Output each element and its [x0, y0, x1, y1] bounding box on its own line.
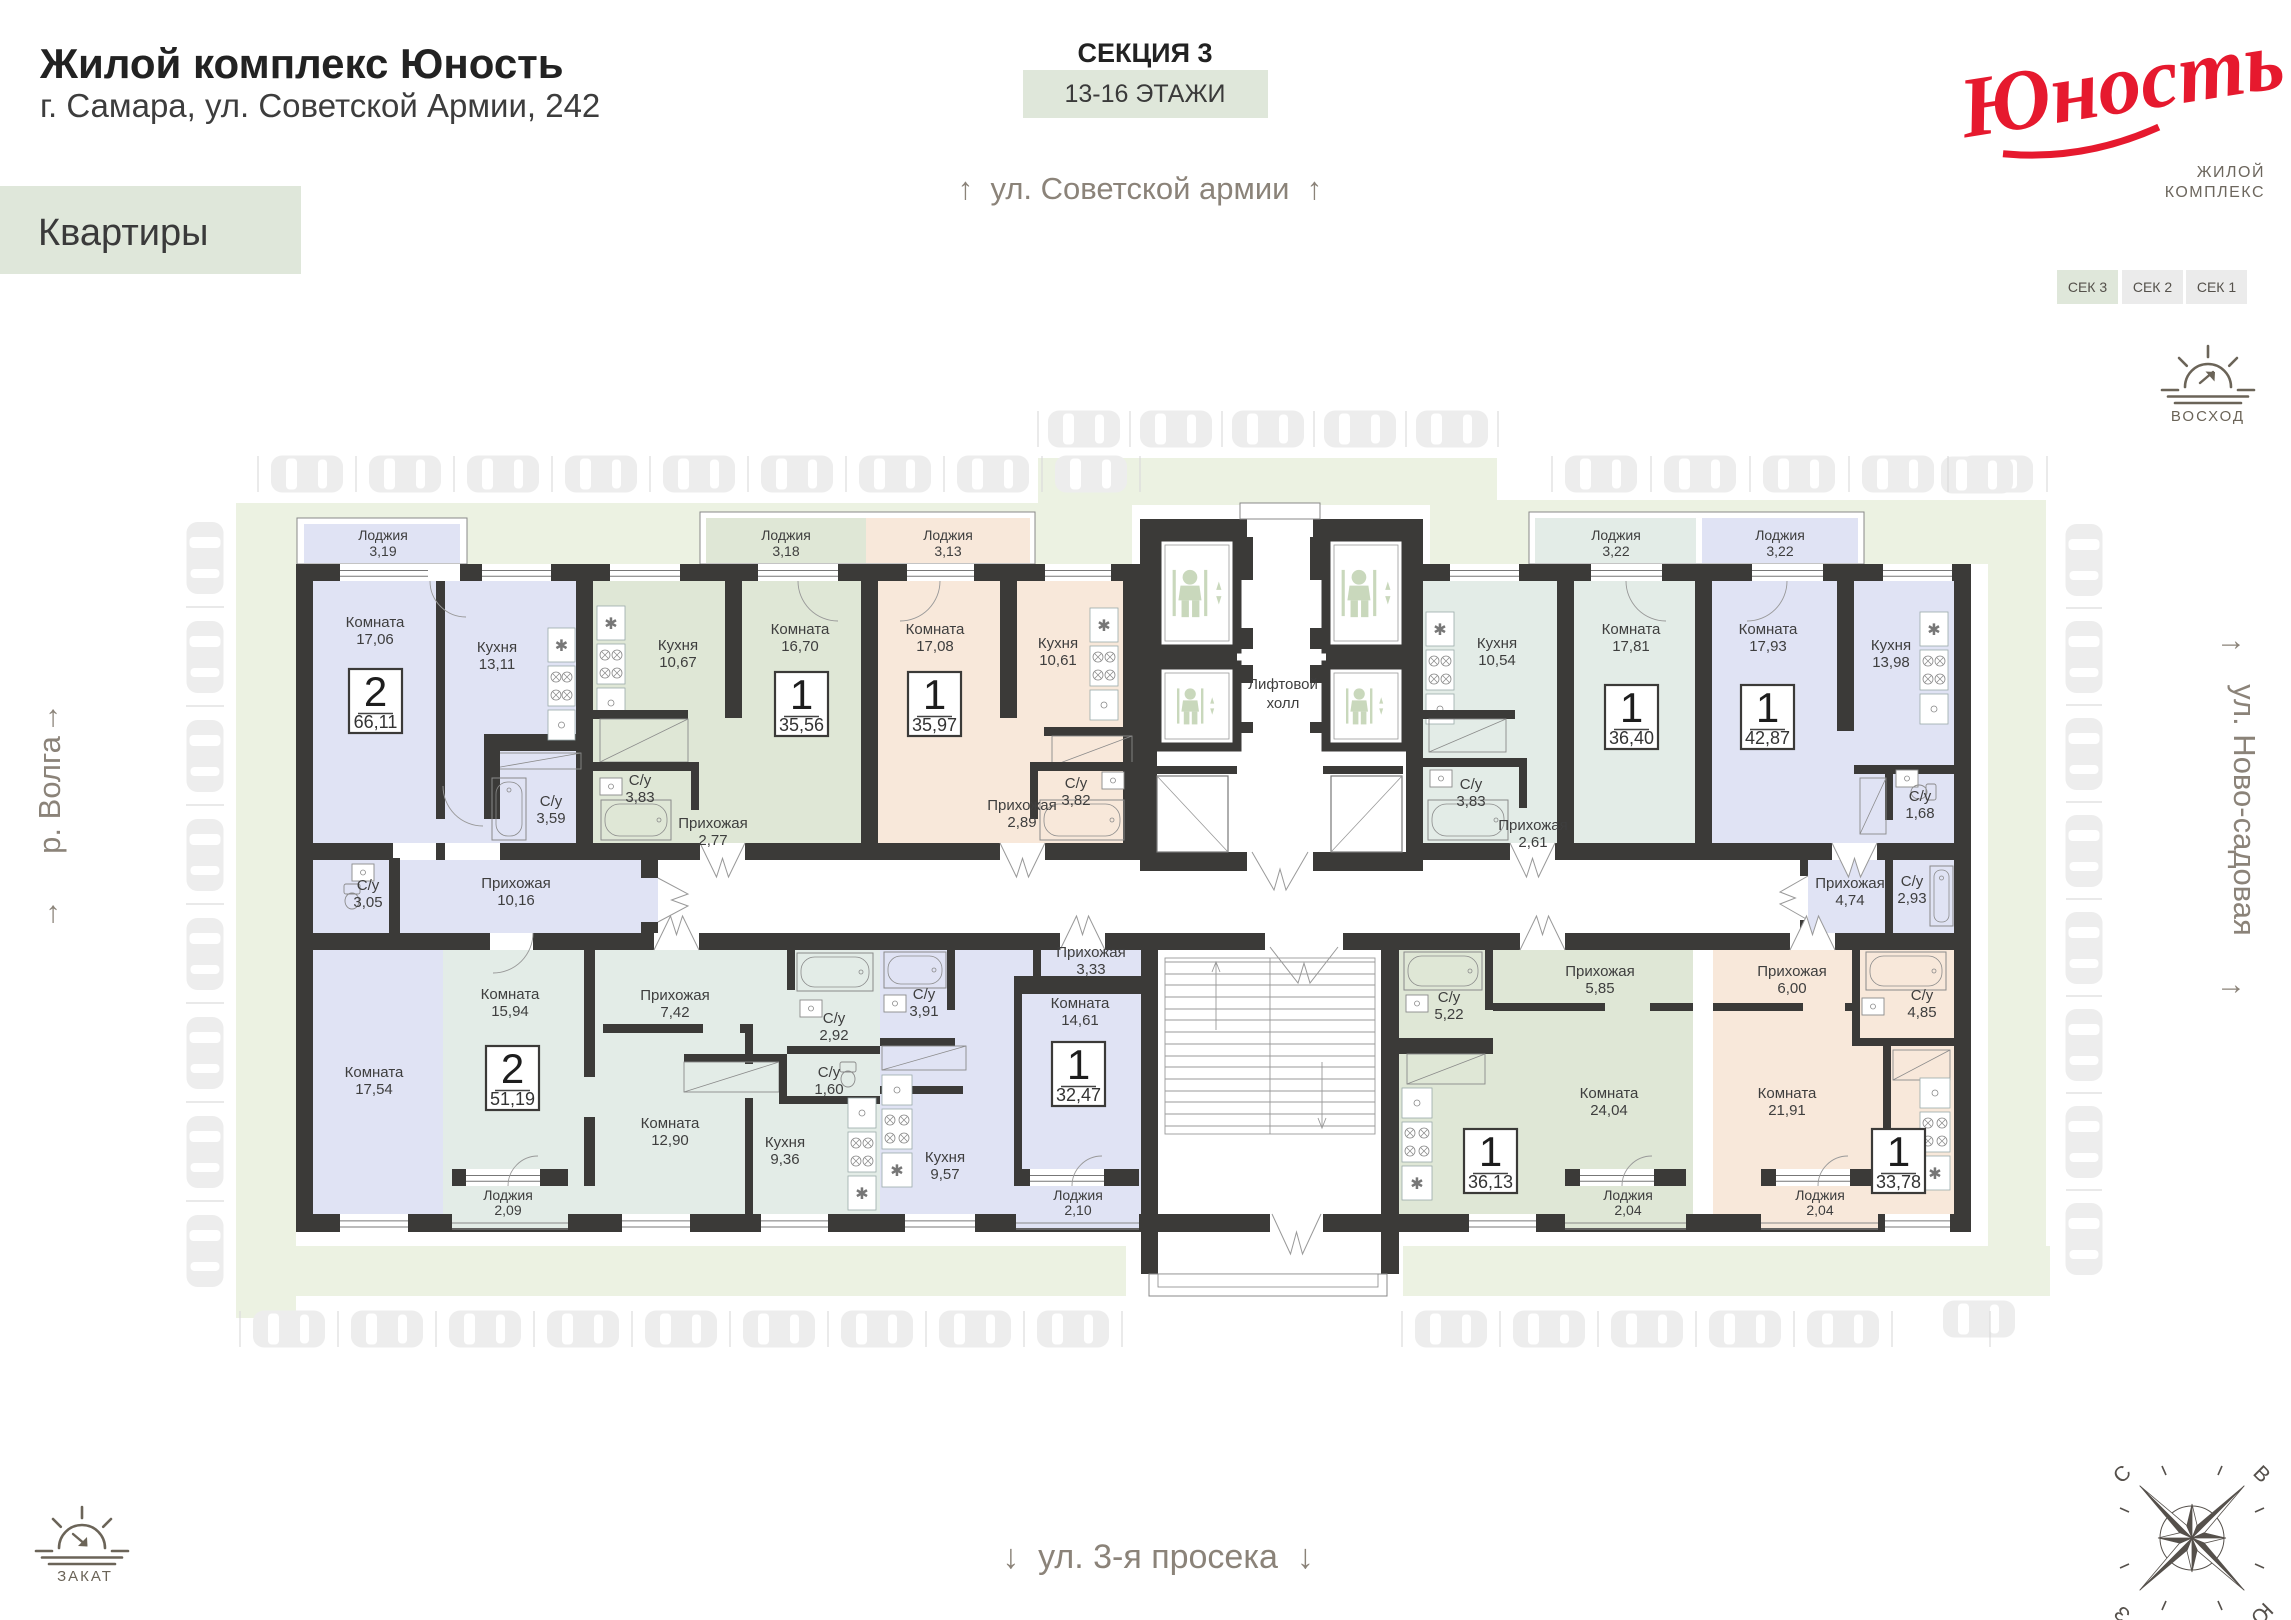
svg-text:Прихожая: Прихожая [987, 797, 1057, 814]
svg-text:16,70: 16,70 [781, 638, 819, 655]
svg-text:✱: ✱ [604, 616, 617, 633]
svg-text:Кухня: Кухня [1477, 635, 1517, 652]
svg-text:6,00: 6,00 [1777, 980, 1806, 997]
svg-text:1: 1 [1479, 1128, 1502, 1175]
svg-text:3,13: 3,13 [934, 543, 961, 559]
svg-text:С/у: С/у [1901, 873, 1924, 890]
svg-text:3,22: 3,22 [1602, 543, 1629, 559]
svg-text:3,05: 3,05 [353, 894, 382, 911]
svg-text:✱: ✱ [1410, 1176, 1423, 1193]
svg-text:12,90: 12,90 [651, 1132, 689, 1149]
svg-text:36,13: 36,13 [1468, 1172, 1513, 1192]
svg-text:С/у: С/у [818, 1064, 841, 1081]
svg-text:42,87: 42,87 [1745, 728, 1790, 748]
svg-text:СЕК 1: СЕК 1 [2197, 279, 2236, 295]
svg-text:17,08: 17,08 [916, 638, 954, 655]
svg-text:✱: ✱ [855, 1186, 868, 1203]
svg-text:10,54: 10,54 [1478, 652, 1516, 669]
svg-text:→: → [2216, 968, 2246, 1001]
svg-text:14,61: 14,61 [1061, 1012, 1099, 1029]
svg-text:СЕК 3: СЕК 3 [2068, 279, 2107, 295]
svg-text:Кухня: Кухня [925, 1149, 965, 1166]
svg-text:2,04: 2,04 [1614, 1202, 1641, 1218]
svg-text:13,11: 13,11 [479, 656, 515, 673]
svg-text:1: 1 [1067, 1041, 1090, 1088]
svg-text:17,54: 17,54 [355, 1081, 393, 1098]
svg-text:Прихожая: Прихожая [640, 987, 710, 1004]
svg-text:Прихожая: Прихожая [1815, 875, 1885, 892]
svg-text:35,97: 35,97 [912, 715, 957, 735]
svg-text:3,59: 3,59 [536, 810, 565, 827]
svg-text:13-16 ЭТАЖИ: 13-16 ЭТАЖИ [1064, 80, 1225, 108]
svg-text:Комната: Комната [771, 621, 830, 638]
svg-text:1: 1 [1756, 684, 1779, 731]
svg-text:р. Волга: р. Волга [32, 735, 67, 853]
svg-text:3,22: 3,22 [1766, 543, 1793, 559]
svg-text:✱: ✱ [555, 638, 568, 655]
svg-text:✱: ✱ [890, 1163, 903, 1180]
svg-text:✱: ✱ [1433, 622, 1446, 639]
svg-text:Комната: Комната [906, 621, 965, 638]
svg-text:10,67: 10,67 [659, 654, 697, 671]
svg-text:СЕК 2: СЕК 2 [2133, 279, 2172, 295]
svg-text:Комната: Комната [346, 614, 405, 631]
svg-text:Прихожая: Прихожая [678, 815, 748, 832]
svg-text:66,11: 66,11 [354, 712, 398, 732]
svg-text:КОМПЛЕКС: КОМПЛЕКС [2165, 184, 2265, 201]
svg-text:↑: ↑ [46, 896, 61, 929]
svg-text:✱: ✱ [1927, 622, 1940, 639]
svg-text:Лоджия: Лоджия [1755, 527, 1805, 543]
svg-text:С/у: С/у [1911, 987, 1934, 1004]
svg-text:Комната: Комната [1758, 1085, 1817, 1102]
svg-text:Прихожая: Прихожая [1565, 963, 1635, 980]
svg-text:Кухня: Кухня [1038, 635, 1078, 652]
svg-text:Кухня: Кухня [1871, 637, 1911, 654]
svg-text:2,92: 2,92 [819, 1027, 848, 1044]
svg-text:С/у: С/у [1065, 775, 1088, 792]
svg-text:Лоджия: Лоджия [1603, 1187, 1653, 1203]
svg-text:Комната: Комната [1580, 1085, 1639, 1102]
svg-text:Комната: Комната [481, 986, 540, 1003]
svg-text:ВОСХОД: ВОСХОД [2171, 408, 2245, 425]
svg-text:Лоджия: Лоджия [923, 527, 973, 543]
svg-text:Комната: Комната [345, 1064, 404, 1081]
svg-text:Прихожая: Прихожая [481, 875, 551, 892]
svg-text:2,04: 2,04 [1806, 1202, 1833, 1218]
svg-text:2,77: 2,77 [698, 832, 727, 849]
svg-text:Комната: Комната [1602, 621, 1661, 638]
svg-text:ЖИЛОЙ: ЖИЛОЙ [2197, 162, 2265, 181]
svg-text:17,93: 17,93 [1749, 638, 1787, 655]
svg-text:Прихожая: Прихожая [1498, 817, 1568, 834]
svg-text:2: 2 [501, 1045, 524, 1092]
svg-text:С/у: С/у [1438, 989, 1461, 1006]
svg-text:1: 1 [923, 671, 946, 718]
svg-text:2,61: 2,61 [1518, 834, 1547, 851]
svg-text:г. Самара, ул. Советской Армии: г. Самара, ул. Советской Армии, 242 [40, 87, 600, 124]
svg-text:ЗАКАТ: ЗАКАТ [57, 1568, 113, 1585]
svg-text:СЕКЦИЯ 3: СЕКЦИЯ 3 [1077, 38, 1212, 68]
svg-text:10,16: 10,16 [497, 892, 535, 909]
svg-text:33,78: 33,78 [1876, 1172, 1921, 1192]
svg-text:✱: ✱ [1097, 618, 1110, 635]
svg-text:↑ ул. Советской армии ↑: ↑ ул. Советской армии ↑ [958, 171, 1322, 206]
svg-text:1,68: 1,68 [1905, 805, 1934, 822]
svg-text:1: 1 [790, 671, 813, 718]
svg-text:↑: ↑ [46, 700, 61, 733]
svg-text:Комната: Комната [1739, 621, 1798, 638]
svg-text:2,09: 2,09 [494, 1202, 521, 1218]
svg-text:17,06: 17,06 [356, 631, 394, 648]
svg-text:21,91: 21,91 [1768, 1102, 1806, 1119]
svg-text:Лоджия: Лоджия [1591, 527, 1641, 543]
svg-text:Лоджия: Лоджия [1053, 1187, 1103, 1203]
svg-text:15,94: 15,94 [491, 1003, 529, 1020]
svg-text:36,40: 36,40 [1609, 728, 1654, 748]
svg-text:С/у: С/у [540, 793, 563, 810]
svg-text:3,83: 3,83 [1456, 793, 1485, 810]
svg-text:32,47: 32,47 [1056, 1085, 1101, 1105]
svg-text:С/у: С/у [629, 772, 652, 789]
svg-text:4,85: 4,85 [1907, 1004, 1936, 1021]
svg-text:17,81: 17,81 [1612, 638, 1650, 655]
svg-text:Квартиры: Квартиры [38, 212, 208, 254]
svg-text:24,04: 24,04 [1590, 1102, 1628, 1119]
svg-text:Лоджия: Лоджия [761, 527, 811, 543]
svg-text:3,82: 3,82 [1061, 792, 1090, 809]
svg-text:5,22: 5,22 [1434, 1006, 1463, 1023]
svg-text:→: → [2216, 624, 2246, 657]
svg-text:2,89: 2,89 [1007, 814, 1036, 831]
svg-text:Жилой комплекс Юность: Жилой комплекс Юность [39, 40, 564, 87]
svg-text:1: 1 [1620, 684, 1643, 731]
svg-text:С/у: С/у [357, 877, 380, 894]
svg-text:Лоджия: Лоджия [1795, 1187, 1845, 1203]
svg-text:3,91: 3,91 [909, 1003, 938, 1020]
svg-text:Комната: Комната [1051, 995, 1110, 1012]
svg-text:С/у: С/у [913, 986, 936, 1003]
svg-text:7,42: 7,42 [660, 1004, 689, 1021]
svg-text:Кухня: Кухня [658, 637, 698, 654]
svg-text:35,56: 35,56 [779, 715, 824, 735]
svg-text:5,85: 5,85 [1585, 980, 1614, 997]
svg-text:10,61: 10,61 [1039, 652, 1077, 669]
svg-text:3,33: 3,33 [1076, 961, 1105, 978]
svg-text:9,36: 9,36 [770, 1151, 799, 1168]
svg-text:Прихожая: Прихожая [1757, 963, 1827, 980]
svg-text:2,93: 2,93 [1897, 890, 1926, 907]
svg-text:1,60: 1,60 [814, 1081, 843, 1098]
svg-text:холл: холл [1267, 695, 1300, 712]
svg-text:ул. Ново-садовая: ул. Ново-садовая [2227, 684, 2262, 936]
svg-text:С/у: С/у [823, 1010, 846, 1027]
svg-text:С/у: С/у [1460, 776, 1483, 793]
svg-text:Лифтовой: Лифтовой [1248, 676, 1318, 693]
svg-text:4,74: 4,74 [1835, 892, 1864, 909]
svg-text:13,98: 13,98 [1872, 654, 1910, 671]
svg-text:9,57: 9,57 [930, 1166, 959, 1183]
svg-text:Кухня: Кухня [765, 1134, 805, 1151]
svg-text:Лоджия: Лоджия [483, 1187, 533, 1203]
svg-text:51,19: 51,19 [490, 1089, 535, 1109]
svg-text:2: 2 [364, 668, 387, 715]
svg-text:1: 1 [1887, 1128, 1910, 1175]
svg-text:Комната: Комната [641, 1115, 700, 1132]
svg-text:С/у: С/у [1909, 788, 1932, 805]
svg-text:Прихожая: Прихожая [1056, 944, 1126, 961]
svg-text:Лоджия: Лоджия [358, 527, 408, 543]
svg-text:3,19: 3,19 [369, 543, 396, 559]
svg-text:✱: ✱ [1928, 1166, 1941, 1183]
svg-text:3,83: 3,83 [625, 789, 654, 806]
svg-text:↓ ул. 3-я просека ↓: ↓ ул. 3-я просека ↓ [1002, 1538, 1314, 1576]
svg-text:2,10: 2,10 [1064, 1202, 1091, 1218]
svg-text:Кухня: Кухня [477, 639, 517, 656]
svg-text:3,18: 3,18 [772, 543, 799, 559]
